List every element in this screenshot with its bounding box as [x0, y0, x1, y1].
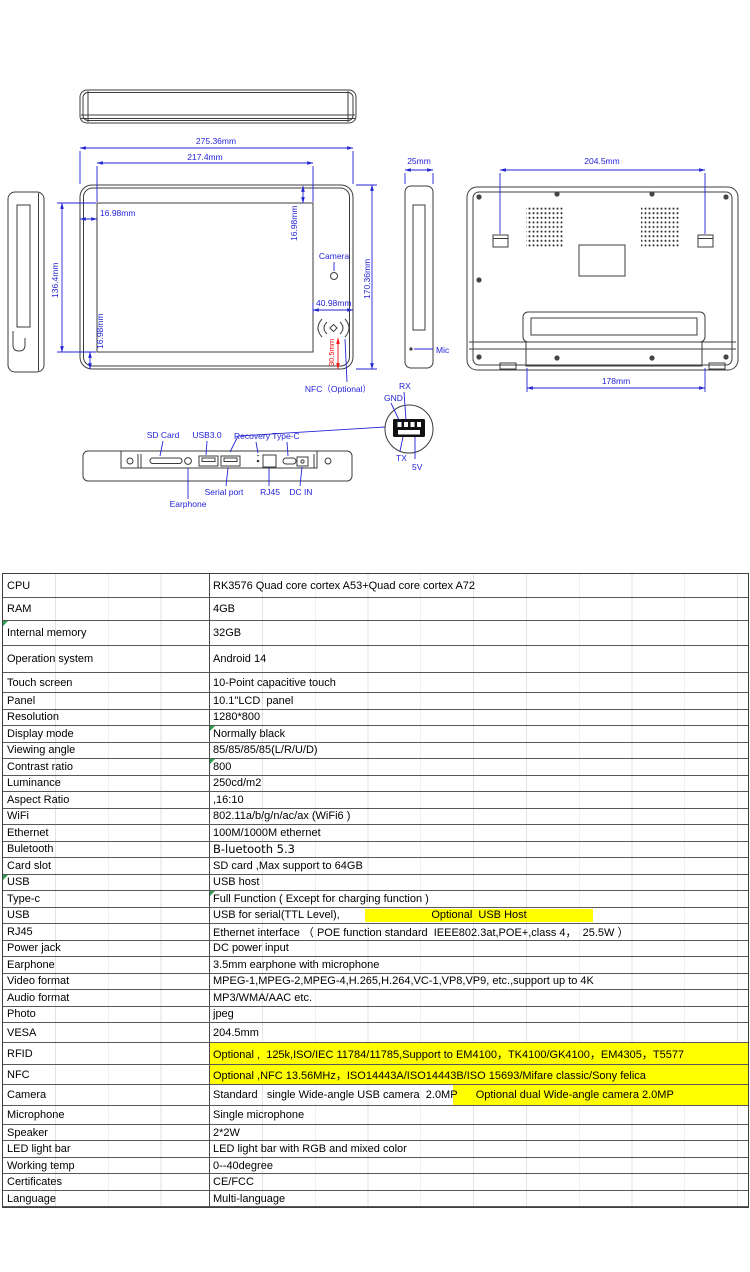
spec-value: 85/85/85/85(L/R/U/D) [210, 743, 748, 759]
spec-value: USB host [210, 875, 748, 891]
spec-value: MPEG-1,MPEG-2,MPEG-4,H.265,H.264,VC-1,VP… [210, 974, 748, 990]
5v-label: 5V [412, 462, 423, 472]
spec-value: 3.5mm earphone with microphone [210, 957, 748, 973]
spec-value: DC power input [210, 941, 748, 957]
spec-label: RAM [3, 598, 210, 620]
spec-row: Operation systemAndroid 14 [3, 646, 748, 673]
spec-label: RJ45 [3, 924, 210, 940]
spec-value: Android 14 [210, 646, 748, 672]
spec-row: Video formatMPEG-1,MPEG-2,MPEG-4,H.265,H… [3, 974, 748, 991]
spec-label: Ethernet [3, 825, 210, 841]
sd-card-label: SD Card [147, 430, 180, 440]
spec-label: Audio format [3, 990, 210, 1006]
spec-value: LED light bar with RGB and mixed color [210, 1141, 748, 1157]
spec-label: Card slot [3, 858, 210, 874]
type-c-port [283, 458, 296, 464]
spec-label: VESA [3, 1023, 210, 1042]
dim-275-label: 275.36mm [196, 136, 236, 146]
spec-value: Multi-language [210, 1191, 748, 1206]
top-view [80, 90, 356, 123]
spec-value: 1280*800 [210, 710, 748, 726]
spec-row: Internal memory32GB [3, 621, 748, 646]
spec-row: RJ45Ethernet interface （ POE function st… [3, 924, 748, 941]
spec-label: Viewing angle [3, 743, 210, 759]
usb3-label: USB3.0 [192, 430, 222, 440]
spec-label: Panel [3, 693, 210, 709]
earphone-jack [185, 458, 192, 465]
spec-row: Panel10.1"LCD panel [3, 693, 748, 710]
spec-value: MP3/WMA/AAC etc. [210, 990, 748, 1006]
spec-row: Earphone3.5mm earphone with microphone [3, 957, 748, 974]
spec-label: Power jack [3, 941, 210, 957]
spec-label: Video format [3, 974, 210, 990]
gnd-label: GND [384, 393, 403, 403]
spec-label: Camera [3, 1085, 210, 1105]
dc-in-port [297, 457, 308, 466]
screen-area [97, 203, 313, 352]
spec-value: 800 [210, 759, 748, 775]
spec-value: jpeg [210, 1007, 748, 1023]
highlight-band: Optional USB Host [365, 909, 593, 923]
spec-row: CameraStandard single Wide-angle USB cam… [3, 1085, 748, 1106]
spec-row: BuletoothB-luetooth 5.3 [3, 842, 748, 859]
technical-drawings-svg: 275.36mm 217.4mm 16.98mm 16.98mm 136.4mm… [0, 0, 750, 565]
spec-label: Microphone [3, 1106, 210, 1124]
technical-drawings: 275.36mm 217.4mm 16.98mm 16.98mm 136.4mm… [0, 0, 750, 565]
dim-25-label: 25mm [407, 156, 431, 166]
spec-label: Certificates [3, 1174, 210, 1190]
spec-label: Speaker [3, 1125, 210, 1140]
spec-row: MicrophoneSingle microphone [3, 1106, 748, 1125]
speaker-grille [413, 205, 425, 330]
dc-in-label: DC IN [289, 487, 312, 497]
spec-label: USB [3, 908, 210, 924]
camera-hole [331, 273, 338, 280]
spec-value: 10-Point capacitive touch [210, 673, 748, 692]
spec-label: USB [3, 875, 210, 891]
dim-4098-label: 40.98mm [316, 298, 351, 308]
spec-row: LanguageMulti-language [3, 1191, 748, 1207]
spec-row: RAM4GB [3, 598, 748, 621]
spec-label: NFC [3, 1065, 210, 1084]
nfc-symbol [318, 319, 349, 337]
spec-row: Touch screen10-Point capacitive touch [3, 673, 748, 693]
spec-row: WiFi802.11a/b/g/n/ac/ax (WiFi6 ) [3, 809, 748, 826]
rear-side-view [405, 170, 433, 368]
recovery-label: Recovery [234, 431, 271, 441]
speaker-holes-left [526, 207, 564, 248]
spec-value: 100M/1000M ethernet [210, 825, 748, 841]
dim-17036-label: 170.36mm [362, 259, 372, 299]
spec-value: SD card ,Max support to 64GB [210, 858, 748, 874]
spec-row: CPURK3576 Quad core cortex A53+Quad core… [3, 574, 748, 598]
spec-label: Luminance [3, 776, 210, 792]
serial-port-label: Serial port [205, 487, 244, 497]
spec-value: 4GB [210, 598, 748, 620]
spec-row: RFIDOptional , 125k,ISO/IEC 11784/11785,… [3, 1043, 748, 1065]
spec-value: CE/FCC [210, 1174, 748, 1190]
spec-row: Viewing angle85/85/85/85(L/R/U/D) [3, 743, 748, 760]
spec-row: LED light barLED light bar with RGB and … [3, 1141, 748, 1158]
spec-label: Photo [3, 1007, 210, 1023]
type-c-label: Type-C [272, 431, 299, 441]
spec-label: Type-c [3, 891, 210, 907]
spec-label: Touch screen [3, 673, 210, 692]
rj45-port [263, 455, 276, 467]
spec-row: USBUSB host [3, 875, 748, 892]
rear-view [467, 170, 738, 392]
spec-value: 2*2W [210, 1125, 748, 1140]
spec-value: Ethernet interface （ POE function standa… [210, 924, 748, 940]
camera-label: Camera [319, 251, 350, 261]
spec-value: Optional ,NFC 13.56MHz，ISO14443A/ISO1444… [210, 1065, 748, 1084]
spec-value: B-luetooth 5.3 [210, 842, 748, 858]
spec-label: Buletooth [3, 842, 210, 858]
spec-row: Type-cFull Function ( Except for chargin… [3, 891, 748, 908]
spec-value: RK3576 Quad core cortex A53+Quad core co… [210, 574, 748, 597]
spec-value: ,16:10 [210, 792, 748, 808]
label-recess [579, 245, 625, 276]
spec-label: Internal memory [3, 621, 210, 645]
spec-sheet-page: 275.36mm 217.4mm 16.98mm 16.98mm 136.4mm… [0, 0, 750, 1272]
mic-label: Mic [436, 345, 450, 355]
speaker-holes-right [641, 207, 679, 248]
recovery-hole [257, 460, 260, 463]
spec-label: Resolution [3, 710, 210, 726]
spec-value: Full Function ( Except for charging func… [210, 891, 748, 907]
mounting-bracket [523, 312, 705, 342]
spec-row: Aspect Ratio,16:10 [3, 792, 748, 809]
spec-label: Aspect Ratio [3, 792, 210, 808]
spec-value: Optional , 125k,ISO/IEC 11784/11785,Supp… [210, 1043, 748, 1064]
rx-label: RX [399, 381, 411, 391]
spec-row: NFCOptional ,NFC 13.56MHz，ISO14443A/ISO1… [3, 1065, 748, 1085]
spec-value: 250cd/m2 [210, 776, 748, 792]
spec-value: Normally black [210, 726, 748, 742]
nfc-label: NFC（Optional） [305, 384, 371, 394]
sd-card-slot [150, 458, 182, 464]
spec-row: VESA204.5mm [3, 1023, 748, 1043]
spec-label: LED light bar [3, 1141, 210, 1157]
spec-label: Display mode [3, 726, 210, 742]
spec-row: Ethernet100M/1000M ethernet [3, 825, 748, 842]
spec-label: Working temp [3, 1158, 210, 1173]
spec-label: Contrast ratio [3, 759, 210, 775]
spec-row: CertificatesCE/FCC [3, 1174, 748, 1191]
spec-value: 10.1"LCD panel [210, 693, 748, 709]
spec-row: Power jackDC power input [3, 941, 748, 958]
spec-value: 32GB [210, 621, 748, 645]
spec-value: 0--40degree [210, 1158, 748, 1173]
spec-row: Photojpeg [3, 1007, 748, 1024]
spec-value: Standard single Wide-angle USB camera 2.… [210, 1085, 748, 1105]
spec-row: Display modeNormally black [3, 726, 748, 743]
speaker-grille [17, 205, 30, 327]
spec-label: Earphone [3, 957, 210, 973]
spec-value: USB for serial(TTL Level),Optional USB H… [210, 908, 748, 924]
spec-row: Working temp0--40degree [3, 1158, 748, 1174]
spec-row: Resolution1280*800 [3, 710, 748, 727]
spec-row: Luminance250cd/m2 [3, 776, 748, 793]
dim-217-label: 217.4mm [187, 152, 222, 162]
dim-178-label: 178mm [602, 376, 630, 386]
spec-row: USBUSB for serial(TTL Level),Optional US… [3, 908, 748, 925]
spec-row: Speaker2*2W [3, 1125, 748, 1141]
spec-label: RFID [3, 1043, 210, 1064]
spec-value: 802.11a/b/g/n/ac/ax (WiFi6 ) [210, 809, 748, 825]
spec-row: Audio formatMP3/WMA/AAC etc. [3, 990, 748, 1007]
mic-hole [409, 347, 412, 350]
spec-table: CPURK3576 Quad core cortex A53+Quad core… [2, 573, 749, 1208]
dim-2045-label: 204.5mm [584, 156, 619, 166]
spec-row: Card slotSD card ,Max support to 64GB [3, 858, 748, 875]
rj45-label: RJ45 [260, 487, 280, 497]
dim-1698-right-label: 16.98mm [289, 206, 299, 241]
spec-label: WiFi [3, 809, 210, 825]
spec-row: Contrast ratio800 [3, 759, 748, 776]
spec-value: Single microphone [210, 1106, 748, 1124]
dim-1698-top-label: 16.98mm [100, 208, 135, 218]
spec-value: 204.5mm [210, 1023, 748, 1042]
spec-label: Operation system [3, 646, 210, 672]
earphone-label: Earphone [170, 499, 207, 509]
left-side-view [8, 192, 44, 372]
spec-label: CPU [3, 574, 210, 597]
dim-1698-bottom-label: 16.98mm [95, 314, 105, 349]
dim-1364-label: 136.4mm [50, 263, 60, 298]
tx-label: TX [396, 453, 407, 463]
spec-label: Language [3, 1191, 210, 1206]
dim-305-label: 30.5mm [327, 339, 336, 366]
